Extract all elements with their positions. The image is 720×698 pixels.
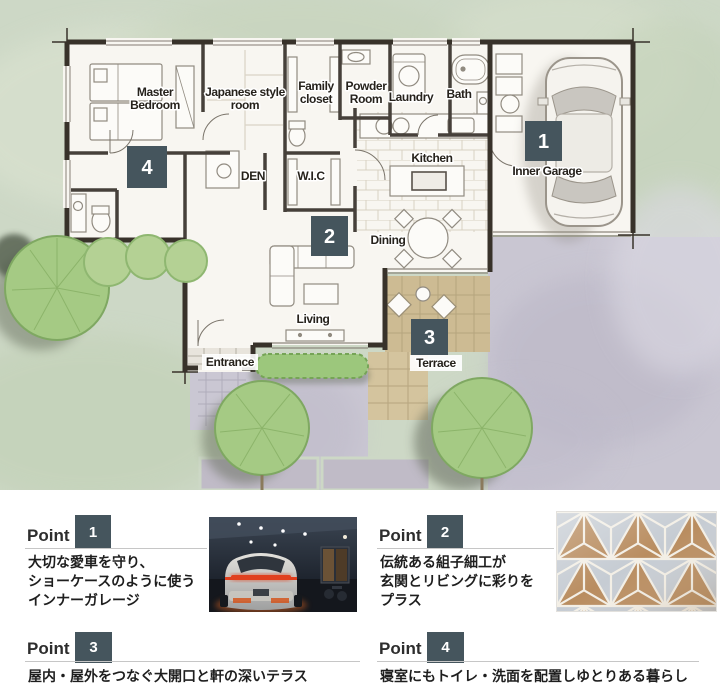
badge-3-number: 3 [424,327,435,349]
inner-garage-night-photo [209,517,357,612]
point-2-number: 2 [441,524,449,541]
point-3-text: 屋内・屋外をつなぐ大開口と軒の深いテラス [28,667,308,686]
point-4-label: Point [379,639,422,659]
point-2-badge: 2 [427,515,463,549]
label-family-closet: Family [298,79,334,93]
point-1-text: 大切な愛車を守り、 ショーケースのように使う インナーガレージ [28,553,195,610]
label-master-bedroom: Master [137,85,174,99]
label-den: DEN [241,169,265,183]
point-4-section: Point 4 寝室にもトイレ・洗面を配置しゆとりある暮らし [377,630,718,696]
point-4-badge: 4 [427,632,464,663]
svg-text:Room: Room [350,92,382,106]
point-1-number: 1 [89,524,97,541]
badge-2-number: 2 [324,226,335,248]
point-3-divider [25,661,360,662]
point-3-badge: 3 [75,632,112,663]
label-living: Living [297,312,330,326]
point-1-section: Point 1 大切な愛車を守り、 ショーケースのように使う インナーガレージ [25,510,360,625]
point-1-label: Point [27,526,70,546]
badge-2-living: 2 [311,216,348,256]
point-1-divider [25,548,207,549]
point-3-label: Point [27,639,70,659]
badge-4-number: 4 [141,157,153,179]
label-dining: Dining [371,233,406,247]
label-terrace: Terrace [416,356,456,370]
label-wic: W.I.C [297,169,325,183]
svg-text:closet: closet [300,92,333,106]
label-inner-garage: Inner Garage [512,164,582,178]
point-4-number: 4 [441,639,449,656]
floor-plan-illustration: 1 2 3 4 Master Bedroom Japanese style ro… [0,0,720,490]
point-2-label: Point [379,526,422,546]
label-powder-room: Powder [346,79,388,93]
svg-text:Bedroom: Bedroom [130,98,180,112]
page: 1 2 3 4 Master Bedroom Japanese style ro… [0,0,720,698]
label-entrance: Entrance [206,355,255,369]
point-1-badge: 1 [75,515,111,549]
point-2-divider [377,548,554,549]
label-laundry: Laundry [389,90,434,104]
point-4-divider [377,661,699,662]
point-2-text: 伝統ある組子細工が 玄関とリビングに彩りを プラス [380,553,534,610]
badge-1-number: 1 [538,131,549,153]
svg-text:room: room [231,98,259,112]
kumiko-woodwork-photo [556,511,717,612]
badge-3-terrace: 3 [411,319,448,355]
badge-4-bedroom: 4 [127,146,167,188]
point-2-section: Point 2 伝統ある組子細工が 玄関とリビングに彩りを プラス [377,510,718,625]
label-kitchen: Kitchen [411,151,452,165]
point-3-number: 3 [89,639,97,656]
floor-plan-svg: 1 2 3 4 Master Bedroom Japanese style ro… [0,0,720,490]
point-3-section: Point 3 屋内・屋外をつなぐ大開口と軒の深いテラス [25,630,360,696]
label-bath: Bath [446,87,471,101]
point-4-text: 寝室にもトイレ・洗面を配置しゆとりある暮らし [380,667,688,686]
label-japanese-style-room: Japanese style [205,85,286,99]
hedge [256,354,368,378]
badge-1-inner-garage: 1 [525,121,562,161]
